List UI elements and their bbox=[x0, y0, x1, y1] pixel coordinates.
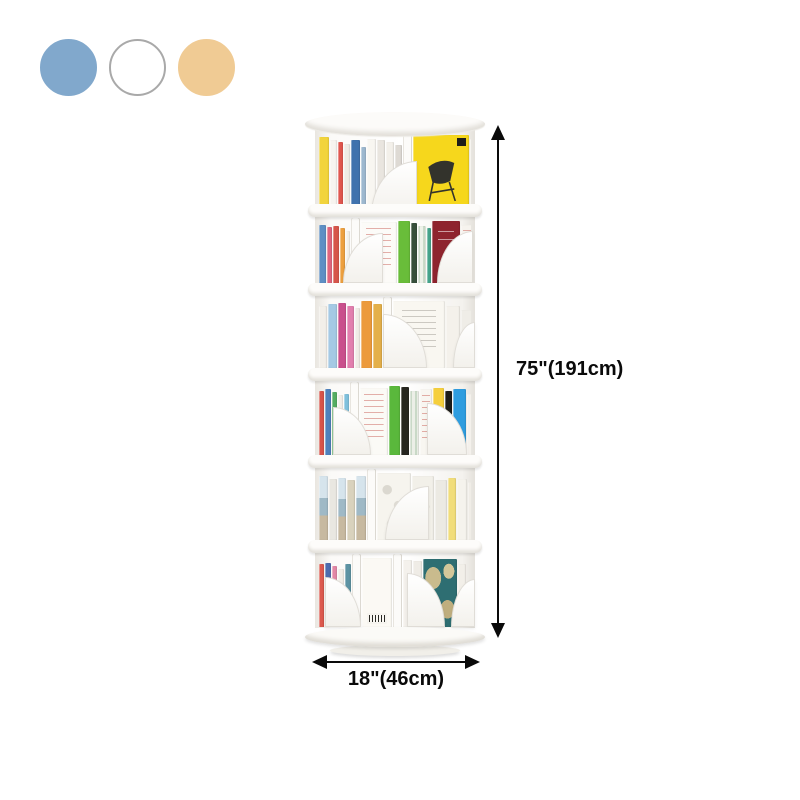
book-spine bbox=[328, 304, 337, 368]
shelf-board bbox=[308, 204, 482, 217]
arrow-line bbox=[497, 140, 499, 623]
shelf-top-board bbox=[305, 112, 485, 136]
arrow-line bbox=[327, 661, 465, 663]
book-spine bbox=[356, 476, 366, 540]
color-options bbox=[40, 39, 235, 96]
product-showcase: 75"(191cm) 18"(46cm) bbox=[0, 0, 800, 800]
shelf-board bbox=[308, 455, 482, 468]
book-spine bbox=[435, 480, 447, 540]
book-spine bbox=[319, 564, 324, 627]
book-spine bbox=[448, 478, 456, 540]
height-dimension-label: 75"(191cm) bbox=[516, 358, 623, 381]
book-spine bbox=[468, 482, 471, 540]
color-swatch-tan[interactable] bbox=[178, 39, 235, 96]
chair-graphic bbox=[420, 151, 463, 207]
book-spine bbox=[327, 227, 332, 283]
shelf-tier-2 bbox=[315, 216, 475, 284]
rotating-bookshelf bbox=[308, 112, 482, 657]
shelf-tier-1 bbox=[315, 128, 475, 216]
shelf-tier-3 bbox=[315, 295, 475, 369]
shelf-board bbox=[308, 368, 482, 381]
shelf-tier-5 bbox=[315, 467, 475, 541]
book-spine bbox=[338, 303, 346, 368]
book-spine bbox=[362, 558, 392, 627]
width-dimension-label: 18"(46cm) bbox=[312, 668, 480, 691]
book-spine bbox=[427, 228, 431, 283]
cover-logo bbox=[457, 138, 466, 146]
book-spine bbox=[329, 479, 337, 540]
height-dimension-arrow bbox=[490, 125, 506, 638]
book-spine bbox=[361, 301, 372, 368]
book-spine bbox=[347, 306, 354, 368]
arrowhead-up-icon bbox=[491, 125, 505, 140]
arrowhead-left-icon bbox=[312, 655, 327, 669]
book-spine bbox=[325, 389, 331, 455]
shelf-board bbox=[308, 283, 482, 296]
book-spine bbox=[457, 479, 467, 540]
book-spine bbox=[389, 386, 400, 455]
shelf-pole bbox=[393, 554, 402, 627]
book-spine bbox=[338, 478, 346, 540]
shelf-tier-6 bbox=[315, 552, 475, 628]
arrowhead-right-icon bbox=[465, 655, 480, 669]
shelf-pole bbox=[367, 469, 376, 540]
book-spine bbox=[319, 391, 324, 455]
book-spine bbox=[418, 226, 426, 283]
color-swatch-blue[interactable] bbox=[40, 39, 97, 96]
shelf-base-board bbox=[305, 627, 485, 647]
arrowhead-down-icon bbox=[491, 623, 505, 638]
book-spine bbox=[319, 306, 327, 368]
book-spine bbox=[347, 480, 355, 540]
book-spine bbox=[333, 226, 339, 283]
shelf-board bbox=[308, 540, 482, 553]
book-spine bbox=[467, 394, 471, 455]
book-spine bbox=[319, 225, 326, 284]
book-spine bbox=[373, 304, 382, 368]
book-spine bbox=[319, 476, 328, 540]
book-spine bbox=[401, 387, 409, 455]
shelf-tier-4 bbox=[315, 380, 475, 456]
book-spine bbox=[355, 308, 360, 368]
barcode bbox=[369, 615, 385, 623]
color-swatch-white[interactable] bbox=[109, 39, 166, 96]
book-spine bbox=[410, 391, 419, 455]
book-spine bbox=[398, 221, 410, 283]
book-spine bbox=[411, 223, 417, 283]
